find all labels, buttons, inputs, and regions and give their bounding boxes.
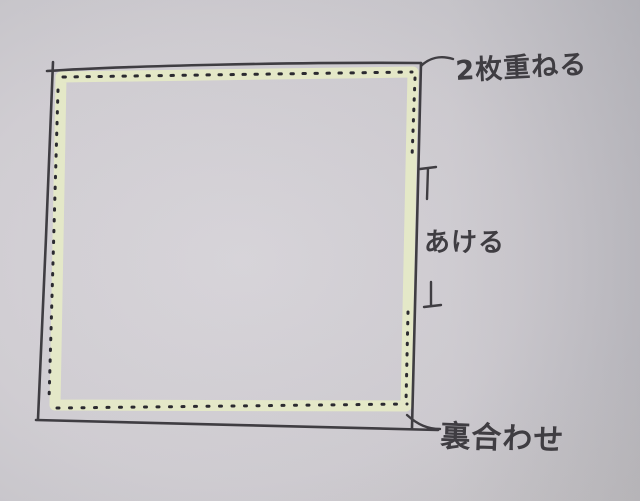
photo-of-sewing-diagram: 2枚重ねる あける 裏合わせ (0, 0, 640, 501)
label-wrong-sides-together: 裏合わせ (440, 419, 565, 458)
label-leave-open: あける (424, 228, 505, 258)
sewing-diagram-canvas: 2枚重ねる あける 裏合わせ (0, 0, 640, 501)
paper-shading-bottom (0, 250, 640, 501)
